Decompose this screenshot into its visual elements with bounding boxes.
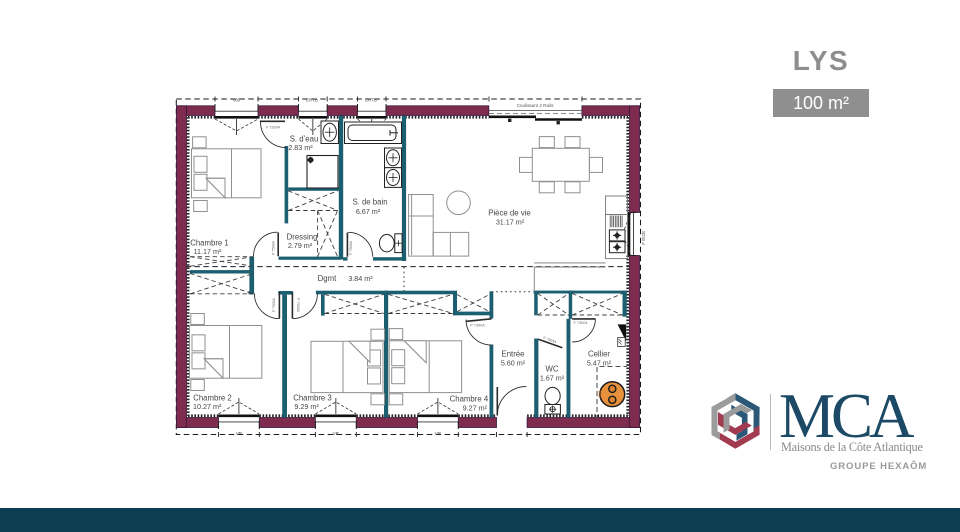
- svg-text:3.84 m²: 3.84 m²: [348, 274, 373, 283]
- svg-text:9.29 m²: 9.29 m²: [294, 402, 319, 411]
- svg-text:VR: VR: [236, 431, 243, 436]
- svg-text:9.27 m²: 9.27 m²: [463, 403, 488, 412]
- svg-text:2.79 m²: 2.79 m²: [288, 241, 313, 250]
- svg-text:10.27 m²: 10.27 m²: [193, 402, 222, 411]
- svg-text:Coulissant 2 Rails: Coulissant 2 Rails: [517, 103, 554, 108]
- svg-text:LP/TB: LP/TB: [365, 98, 377, 103]
- svg-text:080: 080: [233, 98, 241, 103]
- svg-text:F 73004: F 73004: [574, 321, 588, 325]
- svg-text:2.83 m²: 2.83 m²: [288, 143, 313, 152]
- svg-text:F 73004: F 73004: [266, 126, 280, 130]
- svg-text:VR: VR: [435, 431, 442, 436]
- svg-text:P 7508A: P 7508A: [272, 241, 276, 255]
- svg-text:Chambre 4: Chambre 4: [450, 395, 489, 404]
- svg-text:P 7300A: P 7300A: [470, 323, 485, 327]
- svg-text:6.67 m²: 6.67 m²: [356, 207, 381, 216]
- svg-text:Pièce de vie: Pièce de vie: [488, 209, 530, 218]
- svg-text:11.17 m²: 11.17 m²: [194, 247, 222, 256]
- svg-text:5.47 m²: 5.47 m²: [587, 359, 612, 368]
- svg-text:VR: VR: [333, 431, 340, 436]
- svg-text:5.60 m²: 5.60 m²: [501, 359, 526, 368]
- svg-text:1.67 m²: 1.67 m²: [540, 374, 565, 383]
- svg-text:P 7508A: P 7508A: [349, 241, 353, 255]
- svg-text:Entrée: Entrée: [502, 350, 525, 359]
- svg-text:P 7508A: P 7508A: [272, 298, 276, 312]
- svg-text:Dgmt: Dgmt: [318, 274, 337, 283]
- svg-text:200L: 200L: [598, 390, 602, 398]
- svg-text:F 052B: F 052B: [641, 231, 646, 245]
- svg-text:P 7508A: P 7508A: [296, 298, 300, 312]
- svg-text:Cellier: Cellier: [588, 350, 610, 359]
- svg-text:?: ?: [725, 101, 726, 102]
- svg-text:31.17 m²: 31.17 m²: [496, 218, 525, 227]
- svg-text:LP/TB: LP/TB: [306, 98, 318, 103]
- svg-text:S. de bain: S. de bain: [352, 198, 387, 207]
- svg-text:WC: WC: [546, 365, 559, 374]
